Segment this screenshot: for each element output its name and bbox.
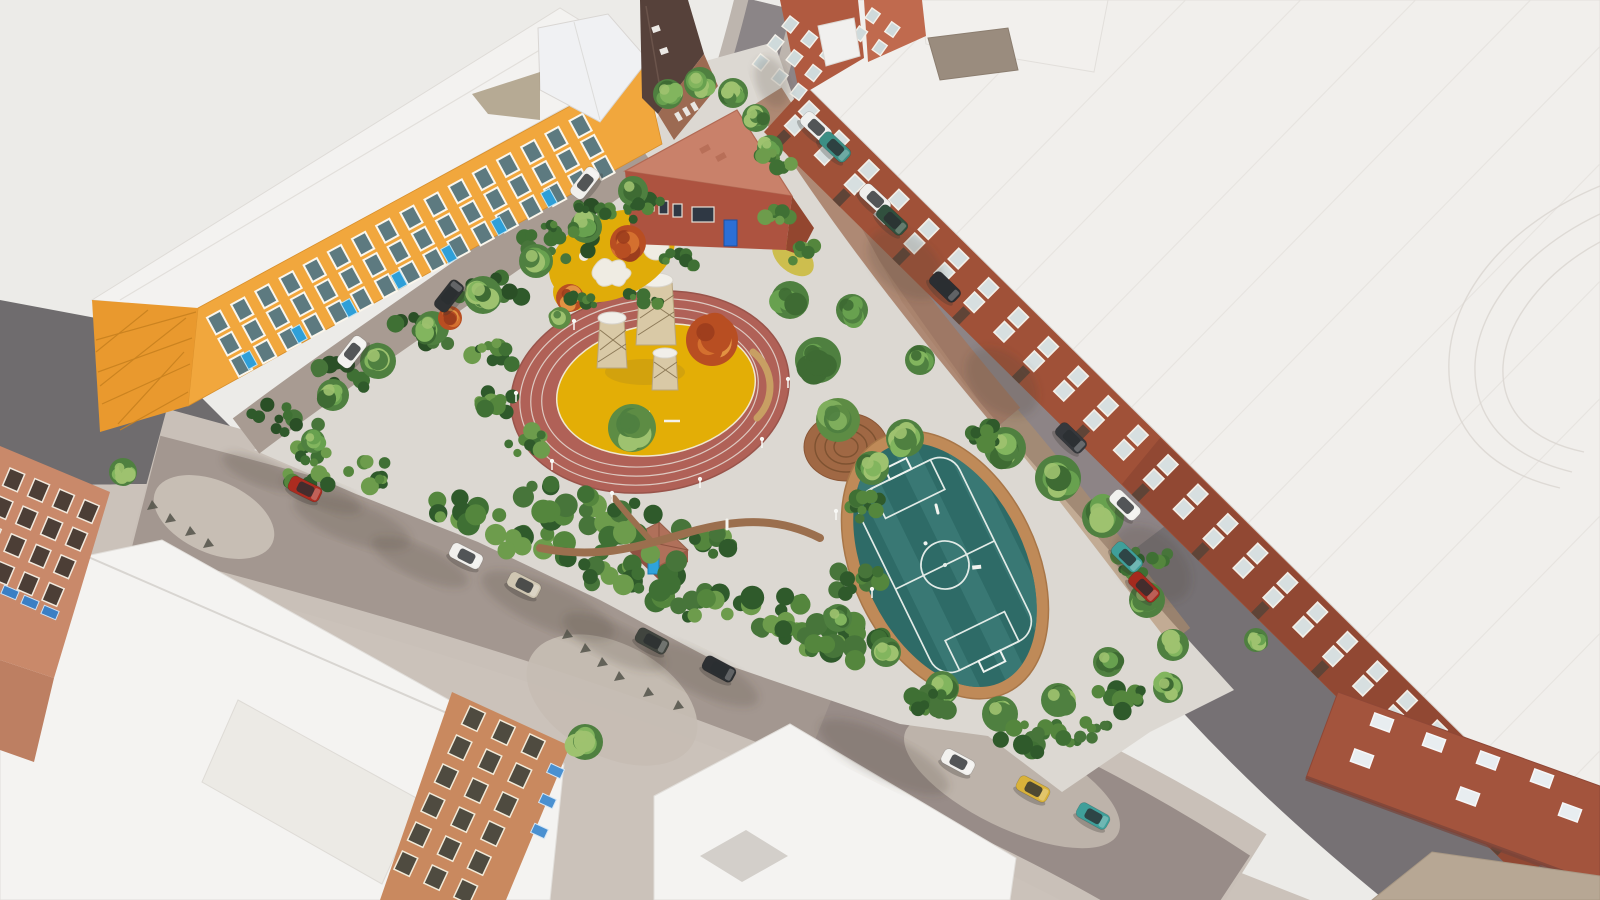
bush <box>533 441 550 458</box>
bush <box>492 508 506 522</box>
bush <box>644 505 663 524</box>
tree-highlight <box>830 609 840 619</box>
bush <box>1055 730 1071 746</box>
play-tower-top <box>598 312 626 324</box>
bush <box>740 586 764 610</box>
tree-highlight <box>877 642 888 653</box>
bush <box>868 503 883 518</box>
bush <box>568 226 580 238</box>
bush <box>360 455 373 468</box>
bush <box>817 636 835 654</box>
tree-highlight <box>696 323 714 341</box>
bush <box>583 569 598 584</box>
bush <box>633 583 644 594</box>
bush <box>494 394 507 407</box>
bush <box>775 620 793 638</box>
bush <box>502 284 518 300</box>
bush <box>855 514 865 524</box>
tree-highlight <box>472 283 485 296</box>
tree-highlight <box>1048 689 1060 701</box>
bush <box>845 650 865 670</box>
scene-svg <box>0 0 1600 900</box>
bush <box>1092 685 1105 698</box>
bush <box>531 500 555 524</box>
bush <box>911 702 926 717</box>
bush <box>629 215 638 224</box>
tree-highlight <box>323 385 334 396</box>
light-pole-lamp <box>834 509 837 512</box>
bush <box>504 440 513 449</box>
bush <box>1031 727 1044 740</box>
bush <box>858 506 867 515</box>
tree-highlight <box>762 140 771 149</box>
bush <box>513 486 534 507</box>
bush <box>300 455 310 465</box>
bush <box>1005 720 1022 737</box>
bush <box>280 427 290 437</box>
tree-foliage <box>615 242 632 259</box>
bush <box>477 343 487 353</box>
bush <box>1113 702 1131 720</box>
bush <box>802 246 815 259</box>
bush <box>847 584 857 594</box>
light-pole-lamp <box>514 391 517 394</box>
bush <box>283 411 293 421</box>
tree-highlight <box>574 730 587 743</box>
bush <box>599 208 611 220</box>
bush <box>260 398 274 412</box>
bush <box>788 256 798 266</box>
light-pole-lamp <box>760 437 763 440</box>
amphitheater-tree <box>816 398 860 442</box>
bush <box>343 466 354 477</box>
bush <box>435 511 446 522</box>
bush <box>697 589 716 608</box>
bush <box>980 424 994 438</box>
play-tower-body <box>597 320 627 368</box>
tree-highlight <box>989 702 1002 715</box>
light-pole-lamp <box>786 377 789 380</box>
bush <box>358 381 369 392</box>
light-pole-lamp <box>610 491 613 494</box>
tree-highlight <box>617 231 630 244</box>
tree-highlight <box>1159 678 1170 689</box>
bush <box>757 209 773 225</box>
bush <box>290 418 303 431</box>
tree-highlight <box>1090 503 1105 518</box>
tree-foliage <box>757 112 770 125</box>
bush <box>577 485 595 503</box>
stick <box>936 505 938 513</box>
bush <box>465 504 486 525</box>
bush <box>872 566 883 577</box>
bush <box>379 457 391 469</box>
bush <box>1100 721 1110 731</box>
bush <box>784 157 798 171</box>
light-pole-lamp <box>550 459 553 462</box>
bush <box>613 574 634 595</box>
bush <box>492 338 502 348</box>
light-pole-lamp <box>870 587 873 590</box>
tree-highlight <box>115 463 125 473</box>
rendering-canvas <box>0 0 1600 900</box>
bush <box>375 475 384 484</box>
bush <box>387 315 405 333</box>
bush <box>586 293 595 302</box>
bush <box>721 608 734 621</box>
play-tower-body <box>652 355 678 390</box>
bush <box>708 549 718 559</box>
tree-highlight <box>422 317 434 329</box>
light-pole-lamp <box>698 477 701 480</box>
tree-highlight <box>306 433 314 441</box>
bush <box>655 197 665 207</box>
tree-highlight <box>862 457 874 469</box>
bush <box>776 588 794 606</box>
pavilion-window-wide <box>692 207 714 222</box>
light-pole-lamp <box>572 319 575 322</box>
bush <box>275 415 284 424</box>
bush <box>591 302 598 309</box>
bush <box>858 564 873 579</box>
tree-highlight <box>367 349 380 362</box>
bush <box>665 248 675 258</box>
bush <box>498 542 516 560</box>
pavilion-door <box>724 220 737 246</box>
tree-highlight <box>842 300 853 311</box>
bush <box>537 430 546 439</box>
bush <box>504 356 520 372</box>
bush <box>574 203 584 213</box>
bush <box>652 298 664 310</box>
bush <box>928 689 938 699</box>
tree-highlight <box>1249 632 1257 640</box>
bush <box>688 260 700 272</box>
bush <box>937 700 956 719</box>
tree-highlight <box>1044 463 1060 479</box>
bush <box>550 221 557 228</box>
tree-highlight <box>618 412 635 429</box>
bush <box>864 490 878 504</box>
bush <box>624 208 631 215</box>
bush <box>630 294 636 300</box>
bush <box>1086 732 1098 744</box>
bush <box>485 524 506 545</box>
bush <box>246 409 257 420</box>
tree-highlight <box>624 181 635 192</box>
tree-highlight <box>690 73 701 84</box>
tree-highlight <box>748 109 758 119</box>
tree-highlight <box>911 350 922 361</box>
bush <box>1080 716 1093 729</box>
tree-highlight <box>526 250 538 262</box>
bush <box>775 216 784 225</box>
bush <box>688 608 702 622</box>
bush <box>569 291 579 301</box>
bush <box>310 458 318 466</box>
tree-highlight <box>1099 652 1110 663</box>
tree-highlight <box>825 406 840 421</box>
tree-highlight <box>779 288 792 301</box>
bush <box>526 229 538 241</box>
bush <box>993 732 1009 748</box>
bush <box>476 400 494 418</box>
bush <box>1146 552 1159 565</box>
bush <box>543 476 560 493</box>
tree-highlight <box>659 84 670 95</box>
tree-highlight <box>1163 635 1174 646</box>
tree-highlight <box>804 345 820 361</box>
bush <box>1074 731 1086 743</box>
play-tower-top <box>653 348 677 358</box>
tree-highlight <box>894 426 907 439</box>
bush <box>632 198 645 211</box>
tree-highlight <box>724 83 735 94</box>
bush <box>755 148 771 164</box>
bush <box>662 257 670 265</box>
bush <box>312 365 324 377</box>
tree-highlight <box>553 311 561 319</box>
tree-foliage <box>668 83 683 98</box>
bush <box>1030 745 1044 759</box>
bush <box>320 477 335 492</box>
bush <box>631 567 644 580</box>
bush <box>553 231 567 245</box>
pavilion-windows-item <box>673 204 682 217</box>
bush <box>637 288 651 302</box>
bush <box>560 253 571 264</box>
bush <box>513 449 521 457</box>
bush <box>769 159 785 175</box>
bush <box>578 558 590 570</box>
bush <box>513 537 531 555</box>
bush <box>1013 735 1033 755</box>
bush <box>666 550 688 572</box>
bush <box>719 539 738 558</box>
bush <box>1132 694 1143 705</box>
